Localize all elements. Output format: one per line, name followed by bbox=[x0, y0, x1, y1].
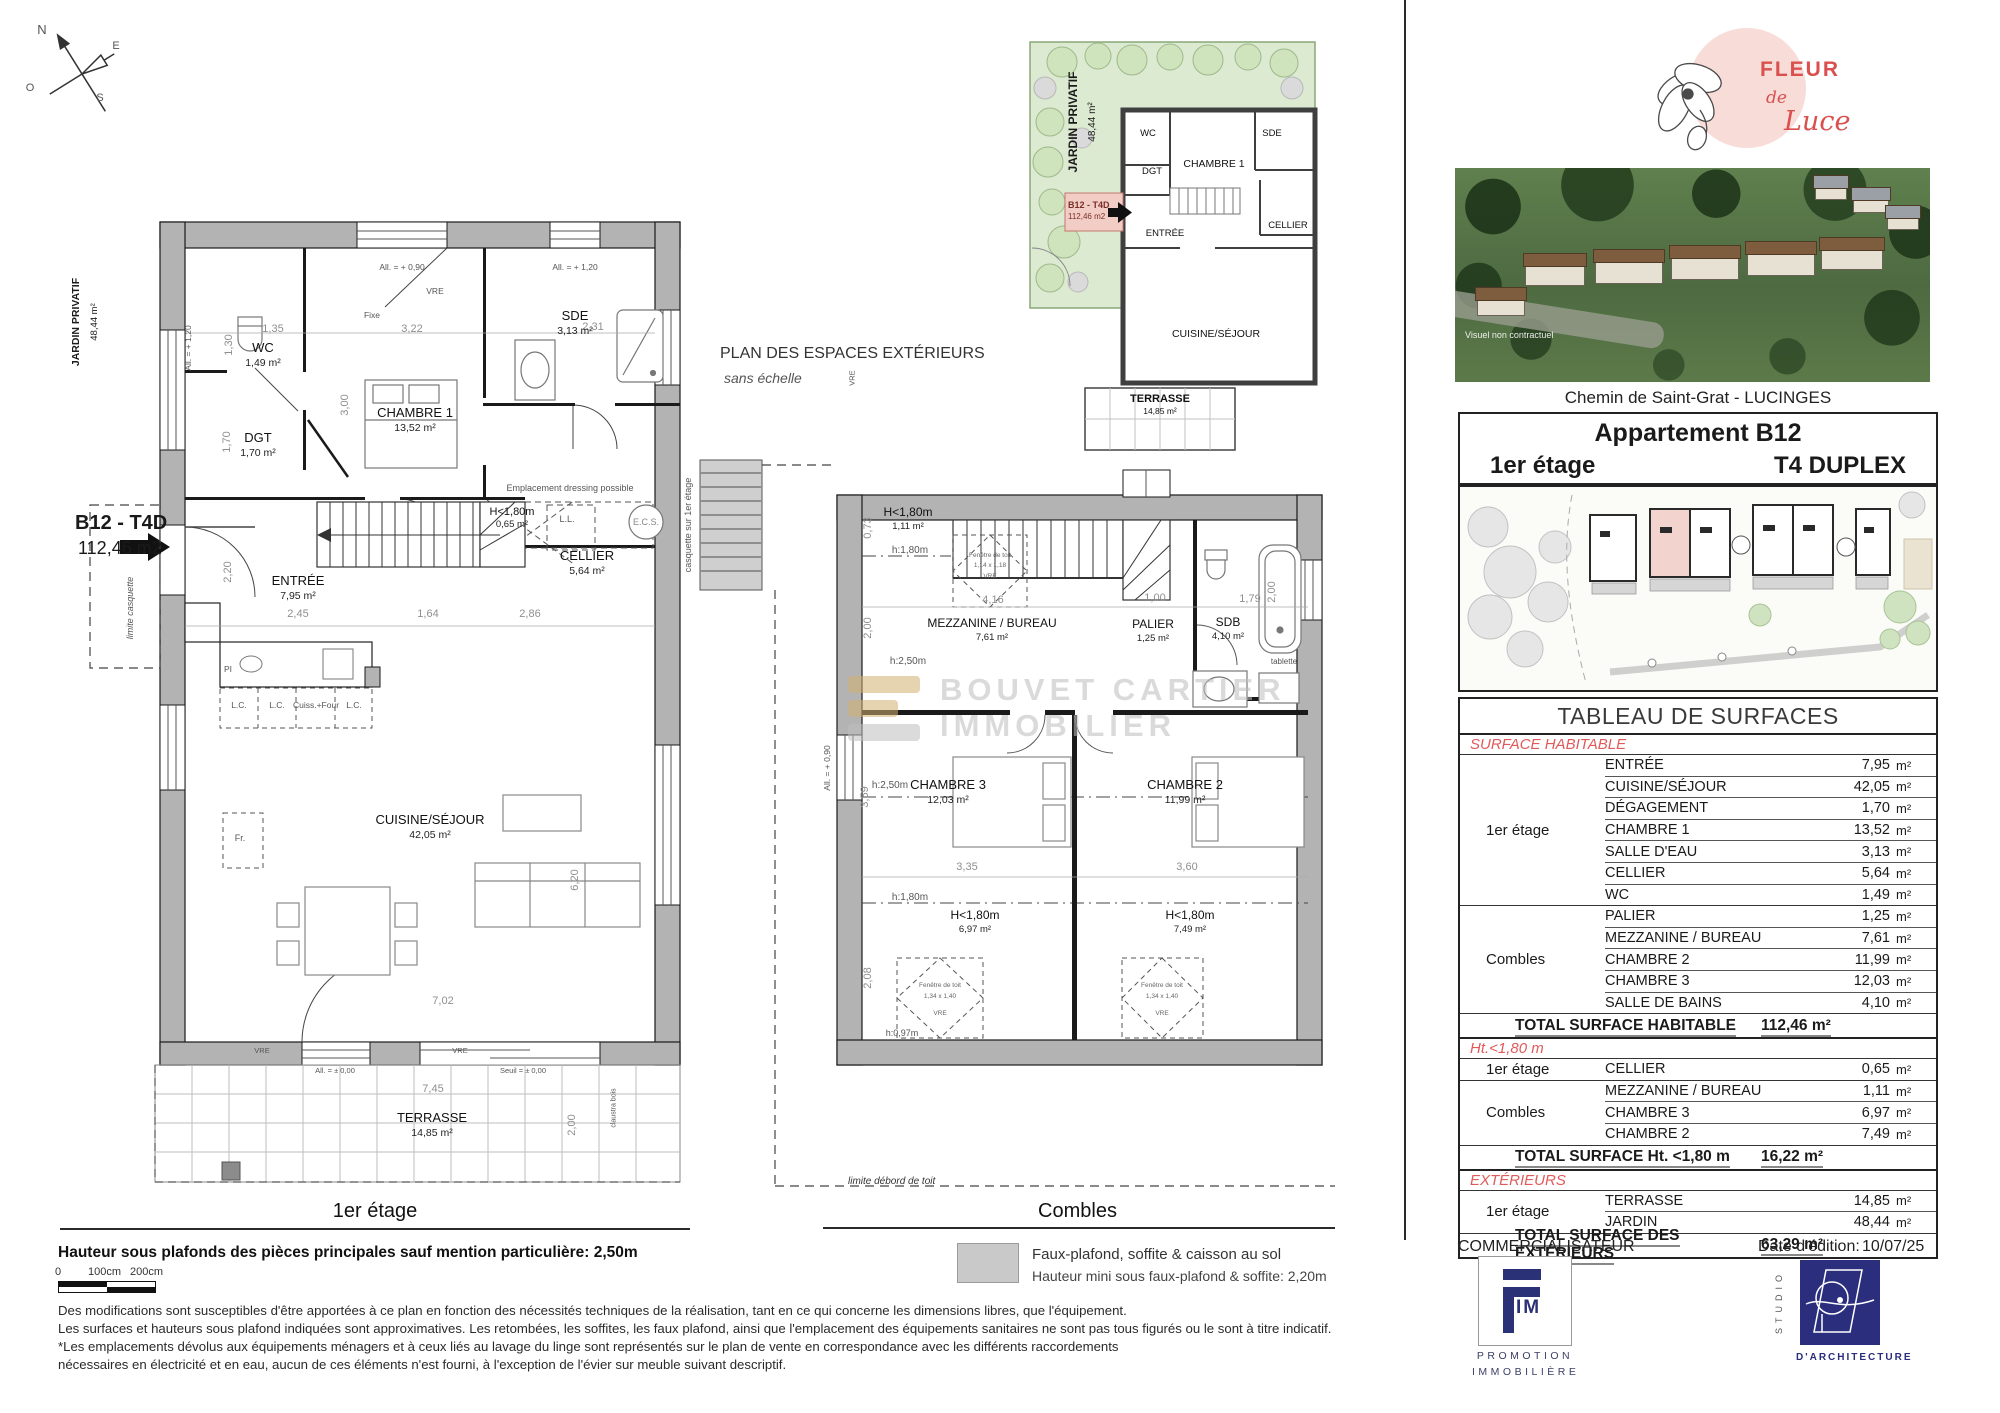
dim-label: 2,45 bbox=[287, 608, 308, 620]
dim-label: 2,86 bbox=[519, 608, 540, 620]
table-row: WC1,49m² bbox=[1605, 885, 1936, 906]
fim-logo-text: IM bbox=[1516, 1297, 1541, 1319]
low-height-label: H<1,80m6,97 m² bbox=[950, 908, 999, 936]
table-room-value: 13,52 bbox=[1830, 822, 1896, 838]
tablette-label: tablette bbox=[1271, 657, 1297, 666]
roof-window-size: 1,14 x 1,18 bbox=[974, 562, 1006, 569]
table-room-unit: m² bbox=[1896, 1193, 1936, 1208]
low-height-label: H<1,80m7,49 m² bbox=[1165, 908, 1214, 936]
surface-table-title: TABLEAU DE SURFACES bbox=[1460, 699, 1936, 735]
table-row: SALLE DE BAINS4,10m² bbox=[1605, 993, 1936, 1014]
dim-label: 3,22 bbox=[401, 323, 422, 335]
dim-label: 1,35 bbox=[262, 323, 283, 335]
photo-caption: Visuel non contractuel bbox=[1465, 330, 1553, 340]
table-room-unit: m² bbox=[1896, 801, 1936, 816]
room-label-sde: SDE3,13 m² bbox=[557, 308, 593, 339]
table-total-label: TOTAL SURFACE Ht. <1,80 m bbox=[1460, 1148, 1761, 1166]
table-total-value: 112,46 m² bbox=[1761, 1017, 1936, 1035]
table-row: CHAMBRE 36,97m² bbox=[1605, 1102, 1936, 1124]
project-photo: Visuel non contractuel bbox=[1455, 168, 1930, 382]
table-room-unit: m² bbox=[1896, 887, 1936, 902]
scale-0: 0 bbox=[55, 1266, 61, 1278]
height-label: h:1,80m bbox=[892, 545, 928, 556]
table-row: TERRASSE14,85m² bbox=[1605, 1191, 1936, 1213]
table-row: CUISINE/SÉJOUR42,05m² bbox=[1605, 777, 1936, 799]
legend-line2: Hauteur mini sous faux-plafond & soffite… bbox=[1032, 1268, 1327, 1284]
low-height-label: H<1,80m0,65 m² bbox=[490, 505, 535, 532]
ceiling-height-note: Hauteur sous plafonds des pièces princip… bbox=[58, 1244, 638, 1262]
height-label: h:0,97m bbox=[886, 1028, 919, 1038]
dim-label: 1,00 bbox=[1144, 592, 1165, 604]
table-row: CHAMBRE 211,99m² bbox=[1605, 949, 1936, 971]
commercialisateur-label: COMMERCIALISATEUR bbox=[1458, 1238, 1635, 1256]
table-rows: CELLIER0,65m² bbox=[1605, 1059, 1936, 1080]
dim-label: 1,70 bbox=[221, 431, 233, 452]
low-height-label: H<1,80m1,11 m² bbox=[883, 505, 932, 533]
table-row: CELLIER0,65m² bbox=[1605, 1059, 1936, 1080]
table-room-value: 6,97 bbox=[1830, 1105, 1896, 1121]
table-room-name: CHAMBRE 3 bbox=[1605, 1105, 1830, 1121]
room-label-wc: WC1,49 m² bbox=[245, 340, 281, 371]
plan2-title-rule bbox=[823, 1227, 1335, 1229]
dim-label: 1,30 bbox=[223, 334, 235, 355]
table-row: MEZZANINE / BUREAU1,11m² bbox=[1605, 1081, 1936, 1103]
table-room-name: CELLIER bbox=[1605, 1061, 1830, 1077]
table-room-unit: m² bbox=[1896, 931, 1936, 946]
table-room-name: CHAMBRE 2 bbox=[1605, 952, 1830, 968]
brand-luce: Luce bbox=[1784, 106, 1850, 137]
table-row: MEZZANINE / BUREAU7,61m² bbox=[1605, 928, 1936, 950]
table-room-unit: m² bbox=[1896, 1084, 1936, 1099]
ext-room-sde: SDE bbox=[1262, 128, 1282, 139]
table-floor-label: 1er étage bbox=[1460, 755, 1605, 905]
table-room-name: CELLIER bbox=[1605, 865, 1830, 881]
allege-label: All. = + 1,20 bbox=[183, 325, 193, 370]
room-label-chambre3: CHAMBRE 312,03 m² bbox=[910, 777, 986, 808]
studio-architecture-logo bbox=[1800, 1260, 1880, 1345]
table-group: ComblesPALIER1,25m²MEZZANINE / BUREAU7,6… bbox=[1460, 905, 1936, 1013]
studio-architecture-label: D'ARCHITECTURE bbox=[1796, 1352, 1913, 1363]
disclaimer-line: nécessaires en électricité et en eau, au… bbox=[58, 1357, 786, 1372]
photo-house bbox=[1525, 264, 1585, 286]
height-label: h:2,50m bbox=[890, 656, 926, 667]
roof-window-label: Fenêtre de toit bbox=[1141, 982, 1183, 989]
table-row: ENTRÉE7,95m² bbox=[1605, 755, 1936, 777]
table-room-name: SALLE D'EAU bbox=[1605, 844, 1830, 860]
ext-unit-label: B12 - T4D bbox=[1068, 200, 1110, 210]
photo-house bbox=[1821, 248, 1883, 270]
scale-200: 200cm bbox=[130, 1266, 163, 1278]
table-room-name: MEZZANINE / BUREAU bbox=[1605, 1083, 1830, 1099]
compass-n: N bbox=[37, 22, 46, 37]
roof-window-vre: VRE bbox=[933, 1010, 946, 1017]
table-room-unit: m² bbox=[1896, 758, 1936, 773]
dim-label: 1,79 bbox=[1239, 593, 1260, 605]
plan2-title: Combles bbox=[820, 1200, 1335, 1223]
photo-house bbox=[1747, 252, 1815, 276]
edition-date-label: Date d'édition: bbox=[1758, 1238, 1860, 1256]
table-floor-label: 1er étage bbox=[1460, 1059, 1605, 1080]
table-room-name: CHAMBRE 3 bbox=[1605, 973, 1830, 989]
table-total-label: TOTAL SURFACE HABITABLE bbox=[1460, 1017, 1761, 1035]
roof-window-label: Fenêtre de toit bbox=[919, 982, 961, 989]
compass-o: O bbox=[26, 82, 35, 94]
table-room-name: PALIER bbox=[1605, 908, 1830, 924]
room-label-mezzanine: MEZZANINE / BUREAU7,61 m² bbox=[927, 616, 1056, 644]
allege-label: All. = + 1,20 bbox=[552, 262, 597, 272]
dim-label: 3,60 bbox=[1176, 861, 1197, 873]
table-rows: MEZZANINE / BUREAU1,11m²CHAMBRE 36,97m²C… bbox=[1605, 1081, 1936, 1145]
table-room-name: SALLE DE BAINS bbox=[1605, 995, 1830, 1011]
dim-label: 3,00 bbox=[339, 394, 351, 415]
table-room-value: 7,49 bbox=[1830, 1126, 1896, 1142]
table-group: ComblesMEZZANINE / BUREAU1,11m²CHAMBRE 3… bbox=[1460, 1080, 1936, 1145]
table-room-value: 0,65 bbox=[1830, 1061, 1896, 1077]
window-vre-label: VRE bbox=[426, 286, 443, 296]
room-label-chambre1: CHAMBRE 113,52 m² bbox=[377, 405, 453, 436]
site-plan bbox=[1458, 485, 1938, 692]
apartment-type: T4 DUPLEX bbox=[1774, 452, 1906, 480]
brand-de: de bbox=[1766, 88, 1787, 108]
ext-unit-area: 112,46 m2 bbox=[1068, 212, 1105, 221]
table-room-unit: m² bbox=[1896, 995, 1936, 1010]
dim-label: 2,00 bbox=[1266, 581, 1278, 602]
table-room-value: 1,49 bbox=[1830, 887, 1896, 903]
table-room-value: 7,61 bbox=[1830, 930, 1896, 946]
disclaimer-line: *Les emplacements dévolus aux équipement… bbox=[58, 1339, 1119, 1354]
table-group: 1er étageCELLIER0,65m² bbox=[1460, 1058, 1936, 1080]
dim-label: 7,45 bbox=[422, 1083, 443, 1095]
dim-label: 6,20 bbox=[569, 869, 581, 890]
table-total-row: TOTAL SURFACE Ht. <1,80 m16,22 m² bbox=[1460, 1145, 1936, 1171]
table-room-unit: m² bbox=[1896, 909, 1936, 924]
room-label-dgt: DGT1,70 m² bbox=[240, 430, 276, 461]
table-room-unit: m² bbox=[1896, 1105, 1936, 1120]
plan-ext-subtitle: sans échelle bbox=[724, 370, 802, 386]
photo-house bbox=[1853, 198, 1889, 213]
jardin-privatif-side-label: JARDIN PRIVATIF 48,44 m² bbox=[66, 278, 102, 366]
height-label: h:1,80m bbox=[892, 892, 928, 903]
unit-area-label: 112,46 m2 bbox=[78, 538, 162, 559]
table-row: CHAMBRE 27,49m² bbox=[1605, 1124, 1936, 1145]
ext-jardin-label: JARDIN PRIVATIF 48,44 m² bbox=[1064, 72, 1100, 173]
casquette-note: casquette sur 1er étage bbox=[683, 478, 693, 573]
ext-room-cellier: CELLIER bbox=[1268, 220, 1308, 231]
column-divider bbox=[1404, 0, 1406, 1240]
table-rows: ENTRÉE7,95m²CUISINE/SÉJOUR42,05m²DÉGAGEM… bbox=[1605, 755, 1936, 905]
table-room-value: 1,70 bbox=[1830, 800, 1896, 816]
room-label-terrasse: TERRASSE14,85 m² bbox=[397, 1110, 467, 1141]
fim-promotion-line: PROMOTION bbox=[1472, 1350, 1578, 1362]
photo-house bbox=[1887, 216, 1919, 230]
compass-icon bbox=[22, 22, 142, 127]
flower-icon bbox=[1640, 40, 1740, 155]
photo-house bbox=[1477, 298, 1525, 316]
table-row: CELLIER5,64m² bbox=[1605, 863, 1936, 885]
plan-sheet: N E S O bbox=[0, 0, 2000, 1413]
seuil-label: Seuil = ± 0,00 bbox=[500, 1066, 546, 1075]
table-floor-label: Combles bbox=[1460, 906, 1605, 1013]
roof-limit-label: limite débord de toit bbox=[848, 1176, 935, 1187]
table-total-row: TOTAL SURFACE HABITABLE112,46 m² bbox=[1460, 1013, 1936, 1039]
ext-room-chambre1: CHAMBRE 1 bbox=[1183, 158, 1244, 171]
ext-room-cuisine: CUISINE/SÉJOUR bbox=[1172, 328, 1260, 341]
allege-label: All. = ± 0,00 bbox=[315, 1066, 355, 1075]
table-room-value: 42,05 bbox=[1830, 779, 1896, 795]
table-room-value: 1,11 bbox=[1830, 1083, 1896, 1099]
table-room-unit: m² bbox=[1896, 952, 1936, 967]
fridge-label: Fr. bbox=[235, 833, 246, 843]
room-label-entree: ENTRÉE7,95 m² bbox=[272, 573, 325, 604]
window-vre-label: VRE bbox=[254, 1046, 269, 1055]
table-row: SALLE D'EAU3,13m² bbox=[1605, 841, 1936, 863]
room-label-palier: PALIER1,25 m² bbox=[1132, 617, 1174, 645]
scale-bar bbox=[58, 1281, 156, 1293]
table-room-name: CHAMBRE 1 bbox=[1605, 822, 1830, 838]
surface-table: TABLEAU DE SURFACES SURFACE HABITABLE1er… bbox=[1458, 697, 1938, 1259]
table-room-name: TERRASSE bbox=[1605, 1193, 1830, 1209]
table-room-unit: m² bbox=[1896, 1062, 1936, 1077]
table-row: PALIER1,25m² bbox=[1605, 906, 1936, 928]
table-room-value: 4,10 bbox=[1830, 995, 1896, 1011]
window-vre-label: VRE bbox=[848, 370, 857, 385]
roof-window-vre: VRE bbox=[983, 573, 996, 580]
dim-label: 0,73 bbox=[862, 517, 874, 538]
photo-house bbox=[1671, 256, 1739, 280]
height-label: h:2,50m bbox=[872, 780, 908, 791]
kitchen-oven-label: Cuiss.+Four bbox=[293, 700, 339, 710]
apartment-header: Appartement B12 1er étage T4 DUPLEX bbox=[1458, 412, 1938, 485]
table-room-value: 7,95 bbox=[1830, 757, 1896, 773]
kitchen-cabinet-label: L.C. bbox=[231, 700, 247, 710]
dim-label: 3,35 bbox=[956, 861, 977, 873]
studio-vertical-text: STUDIO bbox=[1774, 1270, 1784, 1334]
table-room-value: 48,44 bbox=[1830, 1214, 1896, 1230]
table-room-name: MEZZANINE / BUREAU bbox=[1605, 930, 1830, 946]
photo-house bbox=[1815, 186, 1847, 200]
dim-label: 3,59 bbox=[859, 786, 871, 807]
table-room-value: 1,25 bbox=[1830, 908, 1896, 924]
table-row: DÉGAGEMENT1,70m² bbox=[1605, 798, 1936, 820]
roof-window-size: 1,34 x 1,40 bbox=[1146, 993, 1178, 1000]
room-label-cuisine-sejour: CUISINE/SÉJOUR42,05 m² bbox=[375, 812, 484, 843]
dim-label: 7,02 bbox=[432, 995, 453, 1007]
kitchen-cabinet-label: L.C. bbox=[346, 700, 362, 710]
table-section-header: SURFACE HABITABLE bbox=[1460, 735, 1936, 754]
table-room-unit: m² bbox=[1896, 974, 1936, 989]
table-group: 1er étageENTRÉE7,95m²CUISINE/SÉJOUR42,05… bbox=[1460, 754, 1936, 905]
dim-label: 2,20 bbox=[222, 561, 234, 582]
roof-window-label: Fenêtre de toit bbox=[969, 552, 1011, 559]
scale-100: 100cm bbox=[88, 1266, 121, 1278]
edition-date-value: 10/07/25 bbox=[1862, 1238, 1924, 1256]
disclaimer-line: Les surfaces et hauteurs sous plafond in… bbox=[58, 1321, 1331, 1336]
plan-ext-title: PLAN DES ESPACES EXTÉRIEURS bbox=[720, 345, 985, 363]
table-room-name: CHAMBRE 2 bbox=[1605, 1126, 1830, 1142]
table-room-value: 11,99 bbox=[1830, 952, 1896, 968]
roof-window-vre: VRE bbox=[1155, 1010, 1168, 1017]
table-section-header: Ht.<1,80 m bbox=[1460, 1039, 1936, 1058]
address-line: Chemin de Saint-Grat - LUCINGES bbox=[1458, 388, 1938, 408]
room-label-sdb: SDB4,10 m² bbox=[1212, 615, 1244, 643]
apartment-floor: 1er étage bbox=[1490, 452, 1595, 480]
table-room-unit: m² bbox=[1896, 866, 1936, 881]
dim-label: 2,08 bbox=[862, 967, 874, 988]
table-room-name: CUISINE/SÉJOUR bbox=[1605, 779, 1830, 795]
ext-room-entree: ENTRÉE bbox=[1146, 228, 1185, 239]
room-label-chambre2: CHAMBRE 211,99 m² bbox=[1147, 777, 1223, 808]
dim-label: 4,16 bbox=[982, 594, 1003, 606]
fim-immobiliere-line: IMMOBILIÈRE bbox=[1472, 1366, 1578, 1378]
unit-code-label: B12 - T4D bbox=[75, 512, 167, 535]
table-section-header: EXTÉRIEURS bbox=[1460, 1171, 1936, 1190]
window-vre-label: VRE bbox=[452, 1046, 467, 1055]
table-room-unit: m² bbox=[1896, 779, 1936, 794]
photo-house bbox=[1595, 260, 1663, 284]
brand-fleur: FLEUR bbox=[1760, 58, 1840, 82]
apartment-title: Appartement B12 bbox=[1460, 419, 1936, 448]
disclaimer-line: Des modifications sont susceptibles d'êt… bbox=[58, 1303, 1127, 1318]
table-room-unit: m² bbox=[1896, 1127, 1936, 1142]
table-room-value: 12,03 bbox=[1830, 973, 1896, 989]
roof-window-size: 1,34 x 1,40 bbox=[924, 993, 956, 1000]
table-rows: PALIER1,25m²MEZZANINE / BUREAU7,61m²CHAM… bbox=[1605, 906, 1936, 1013]
table-room-unit: m² bbox=[1896, 1215, 1936, 1230]
table-room-name: DÉGAGEMENT bbox=[1605, 800, 1830, 816]
kitchen-cabinet-label: L.C. bbox=[269, 700, 285, 710]
surface-table-sections: SURFACE HABITABLE1er étageENTRÉE7,95m²CU… bbox=[1460, 735, 1936, 1257]
compass-e: E bbox=[112, 40, 119, 52]
table-room-name: ENTRÉE bbox=[1605, 757, 1830, 773]
table-room-unit: m² bbox=[1896, 823, 1936, 838]
dim-label: 2,00 bbox=[566, 1114, 578, 1135]
table-row: CHAMBRE 113,52m² bbox=[1605, 820, 1936, 842]
ext-room-wc: WC bbox=[1140, 128, 1156, 139]
table-room-name: WC bbox=[1605, 887, 1830, 903]
legend-swatch bbox=[957, 1243, 1019, 1283]
table-room-value: 3,13 bbox=[1830, 844, 1896, 860]
pi-label: PI bbox=[224, 664, 232, 674]
table-room-unit: m² bbox=[1896, 844, 1936, 859]
table-total-value: 16,22 m² bbox=[1761, 1148, 1936, 1166]
lave-linge-label: L.L. bbox=[559, 514, 574, 524]
table-room-value: 14,85 bbox=[1830, 1193, 1896, 1209]
table-floor-label: Combles bbox=[1460, 1081, 1605, 1145]
legend-line1: Faux-plafond, soffite & caisson au sol bbox=[1032, 1246, 1281, 1263]
window-fixe-label: Fixe bbox=[364, 310, 380, 320]
dim-label: 2,00 bbox=[862, 617, 874, 638]
compass-s: S bbox=[96, 92, 103, 104]
table-room-value: 5,64 bbox=[1830, 865, 1896, 881]
fim-logo: IM bbox=[1478, 1256, 1572, 1346]
limite-casquette-label: limite casquette bbox=[125, 577, 135, 640]
allege-label: All. = + 0,90 bbox=[379, 262, 424, 272]
table-row: CHAMBRE 312,03m² bbox=[1605, 971, 1936, 993]
allege-label: All. = + 0,90 bbox=[822, 745, 832, 790]
dim-label: 1,64 bbox=[417, 608, 438, 620]
ext-room-dgt: DGT bbox=[1142, 166, 1162, 177]
